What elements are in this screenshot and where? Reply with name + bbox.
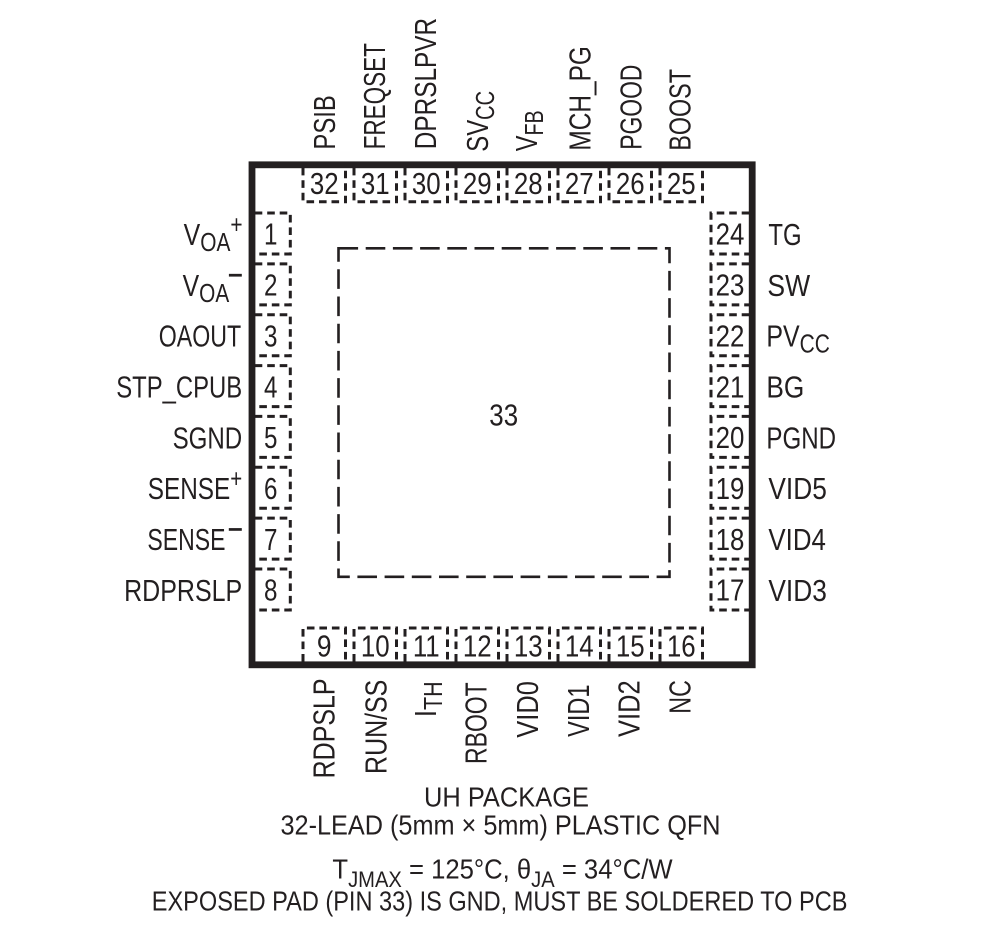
svg-text:2: 2 [264,268,277,303]
svg-text:SENSE+: SENSE+ [148,464,242,506]
svg-text:9: 9 [317,630,332,664]
svg-text:15: 15 [616,629,645,664]
svg-text:21: 21 [716,370,745,405]
svg-text:RDPRSLP: RDPRSLP [124,573,242,607]
svg-text:22: 22 [716,319,745,354]
svg-text:24: 24 [716,218,745,253]
svg-text:10: 10 [361,629,390,664]
svg-text:16: 16 [667,629,696,664]
svg-text:RBOOT: RBOOT [458,682,493,764]
svg-text:30: 30 [412,167,441,202]
svg-text:18: 18 [716,523,745,558]
svg-text:ITH: ITH [409,681,449,717]
svg-text:12: 12 [463,629,492,664]
svg-text:VID2: VID2 [612,680,647,737]
svg-text:25: 25 [667,167,696,202]
svg-text:RDPSLP: RDPSLP [307,679,341,779]
svg-text:SVCC: SVCC [460,91,500,152]
svg-text:STP_CPUB: STP_CPUB [116,369,242,404]
svg-text:28: 28 [514,167,543,202]
svg-text:PGND: PGND [766,420,836,455]
svg-text:SW: SW [767,269,810,303]
svg-text:MCH_PG: MCH_PG [563,46,597,150]
svg-text:3: 3 [264,319,277,354]
svg-text:DPRSLPVR: DPRSLPVR [408,18,442,149]
svg-text:31: 31 [361,167,390,202]
svg-text:20: 20 [716,421,745,456]
svg-text:NC: NC [662,680,697,714]
svg-text:BOOST: BOOST [662,69,697,151]
svg-text:11: 11 [413,629,440,664]
svg-text:UH PACKAGE: UH PACKAGE [424,781,589,812]
svg-text:PGOOD: PGOOD [613,65,648,150]
svg-text:17: 17 [716,574,745,609]
svg-text:VFB: VFB [509,110,549,151]
svg-text:13: 13 [514,629,543,664]
svg-text:VOA+: VOA+ [184,210,243,256]
svg-text:RUN/SS: RUN/SS [359,680,393,774]
svg-text:VID4: VID4 [768,523,826,558]
svg-text:VID5: VID5 [768,472,826,507]
svg-text:32: 32 [310,167,339,202]
svg-text:26: 26 [616,167,645,202]
svg-text:EXPOSED PAD (PIN 33) IS GND, M: EXPOSED PAD (PIN 33) IS GND, MUST BE SOL… [152,886,848,916]
svg-text:PSIB: PSIB [307,95,342,149]
svg-text:27: 27 [565,167,594,202]
svg-text:VID1: VID1 [561,685,596,737]
svg-text:TG: TG [768,217,801,252]
svg-text:32-LEAD (5mm × 5mm) PLASTIC QF: 32-LEAD (5mm × 5mm) PLASTIC QFN [280,810,720,841]
svg-text:SENSE: SENSE [147,522,225,557]
svg-text:29: 29 [463,167,492,202]
svg-text:VID3: VID3 [768,574,826,609]
svg-text:4: 4 [264,369,277,404]
svg-text:19: 19 [716,472,745,507]
svg-text:14: 14 [565,629,594,664]
svg-text:5: 5 [264,420,277,455]
svg-text:OAOUT: OAOUT [159,318,242,353]
svg-text:33: 33 [489,398,518,433]
svg-text:1: 1 [264,217,277,252]
svg-text:8: 8 [264,573,277,608]
svg-text:PVCC: PVCC [766,319,829,359]
svg-text:VOA: VOA [183,268,230,307]
svg-text:VID0: VID0 [511,681,546,738]
svg-text:6: 6 [264,471,277,506]
svg-text:BG: BG [766,370,804,405]
svg-text:7: 7 [264,522,277,557]
svg-text:FREQSET: FREQSET [356,43,391,149]
svg-text:23: 23 [716,268,745,303]
svg-text:SGND: SGND [173,420,243,455]
